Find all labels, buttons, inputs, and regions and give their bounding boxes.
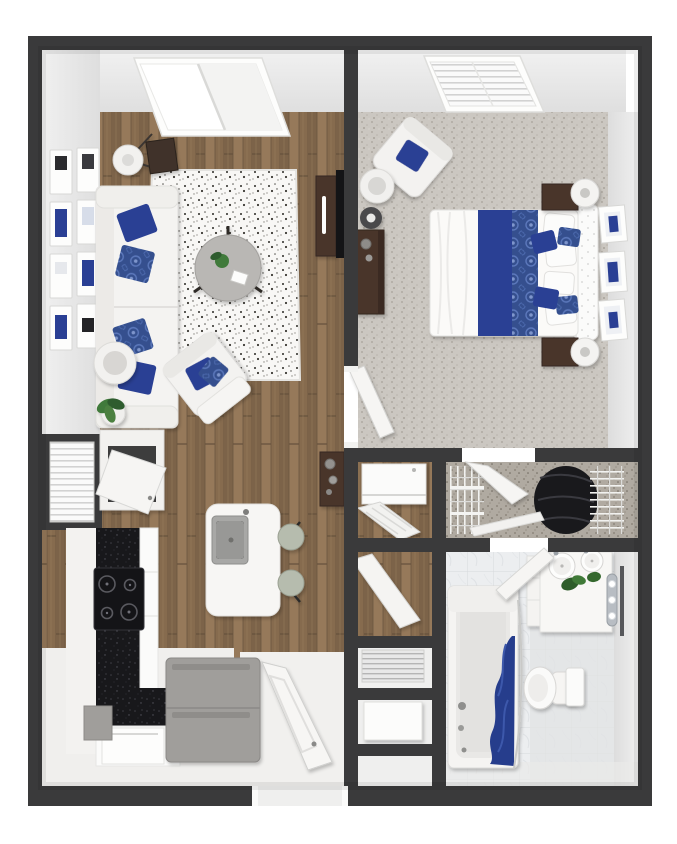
water-heater: [364, 702, 422, 740]
washer-dryer: [362, 464, 426, 504]
nightstand-bottom: [542, 338, 599, 366]
floor-plan-canvas: [0, 0, 677, 844]
bedroom-floor-lamp: [360, 207, 382, 229]
bedroom-bottom-wall-right: [535, 448, 638, 462]
navy-duvet-band: [478, 210, 512, 336]
vanity-light-bar: [607, 574, 617, 626]
dresser: [356, 230, 384, 314]
entry-console: [320, 452, 344, 506]
vase: [326, 489, 332, 495]
bar-stool: [278, 524, 304, 550]
tub-faucet: [458, 702, 466, 710]
hvac-grate: [362, 650, 424, 682]
mirror-edge: [620, 566, 624, 636]
vase: [329, 476, 337, 484]
fridge-handle: [172, 664, 250, 670]
door-jamb: [344, 366, 358, 372]
flip-door-cabinet: [96, 430, 166, 514]
bed: [430, 204, 598, 340]
tv-console: [316, 176, 336, 256]
closet-row-bottom-wall-right: [548, 538, 638, 552]
console-handle: [322, 196, 326, 234]
living-room-window: [134, 58, 290, 136]
patterned-runner: [512, 210, 538, 336]
bathroom-left-wall: [432, 552, 446, 786]
oven: [84, 706, 112, 740]
nightstand-top: [542, 179, 599, 210]
living-bedroom-divider-wall: [344, 36, 358, 372]
navy-accent-pillow: [532, 286, 559, 310]
floor-plan-render: [0, 0, 677, 844]
bar-stool: [278, 570, 304, 596]
toilet-side-cabinet: [566, 668, 584, 706]
cooktop: [94, 568, 144, 630]
sofa: [96, 186, 178, 428]
bedroom-bottom-wall-left: [344, 448, 462, 462]
door-knob: [312, 742, 317, 747]
utility-wall-1: [358, 636, 432, 648]
vase: [361, 239, 371, 249]
utility-wall-2: [358, 688, 432, 700]
wire-shelving-right: [590, 466, 624, 534]
closet-row-bottom-wall-left: [344, 538, 490, 552]
utility-wall-3: [358, 744, 432, 756]
door-jamb: [344, 442, 358, 448]
faucet: [243, 509, 249, 515]
sink-drain: [229, 538, 234, 543]
patterned-pillow: [557, 227, 581, 248]
vase: [325, 459, 335, 469]
hall-utility-left-wall: [344, 552, 358, 786]
round-side-table: [94, 342, 136, 384]
tv: [336, 170, 344, 258]
bedroom-round-table: [360, 169, 394, 203]
wire-shelving-left: [450, 466, 484, 534]
refrigerator: [166, 658, 260, 762]
patterned-pillow: [555, 295, 579, 315]
fridge-handle: [172, 712, 250, 718]
dark-side-table: [146, 138, 178, 174]
blinds-window-alcove: [40, 434, 102, 530]
vase: [366, 255, 373, 262]
bedroom-wall-frames: [598, 205, 627, 341]
bathtub: [448, 586, 521, 768]
